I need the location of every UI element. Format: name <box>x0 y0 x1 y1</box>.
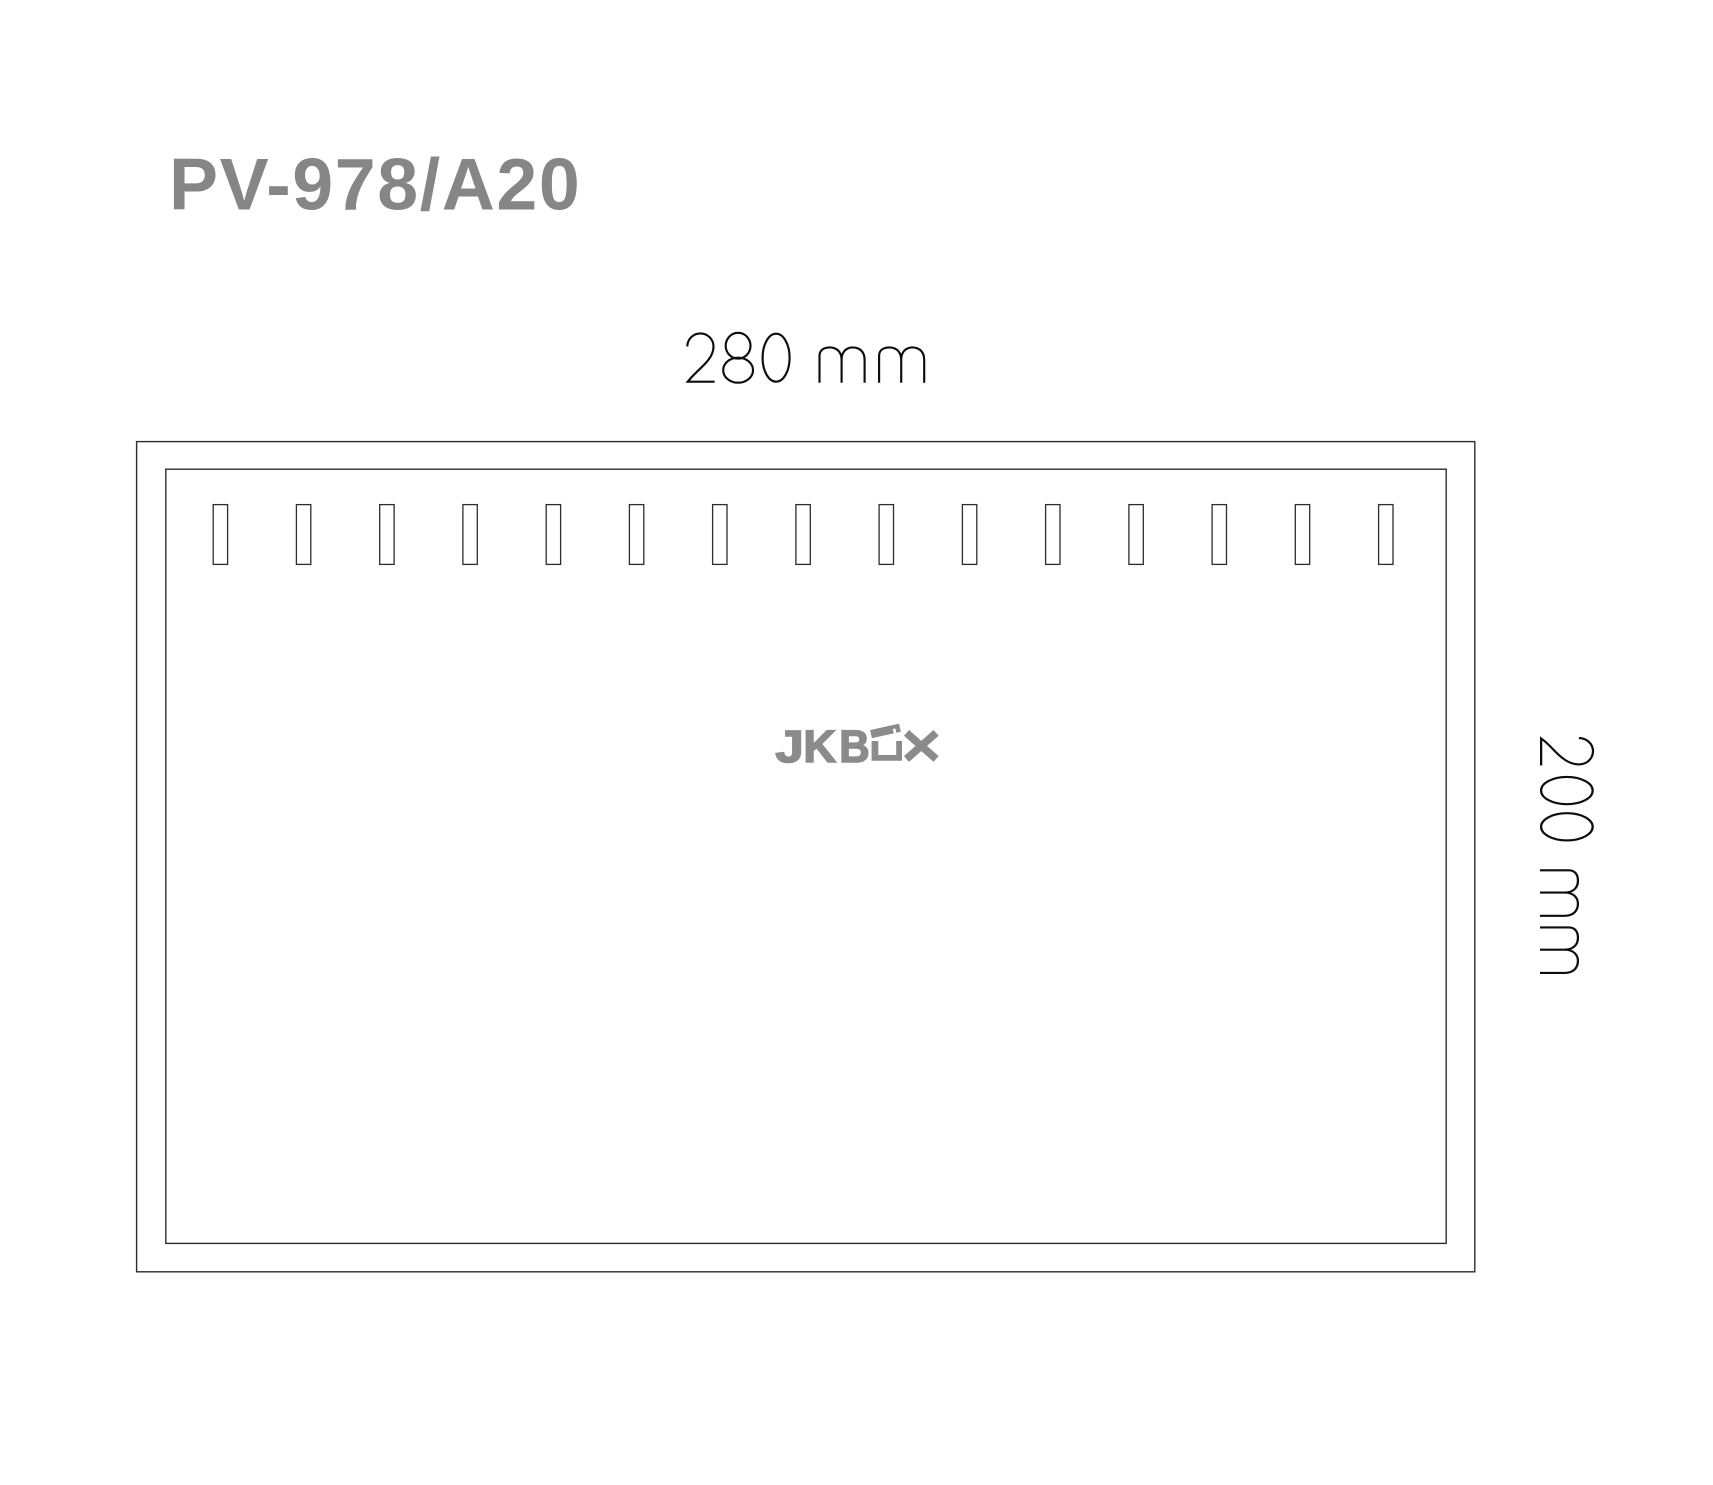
svg-text:J: J <box>775 721 803 772</box>
svg-text:B: B <box>839 721 869 772</box>
svg-text:K: K <box>803 721 836 772</box>
svg-text:PV-978/A20: PV-978/A20 <box>169 143 581 226</box>
